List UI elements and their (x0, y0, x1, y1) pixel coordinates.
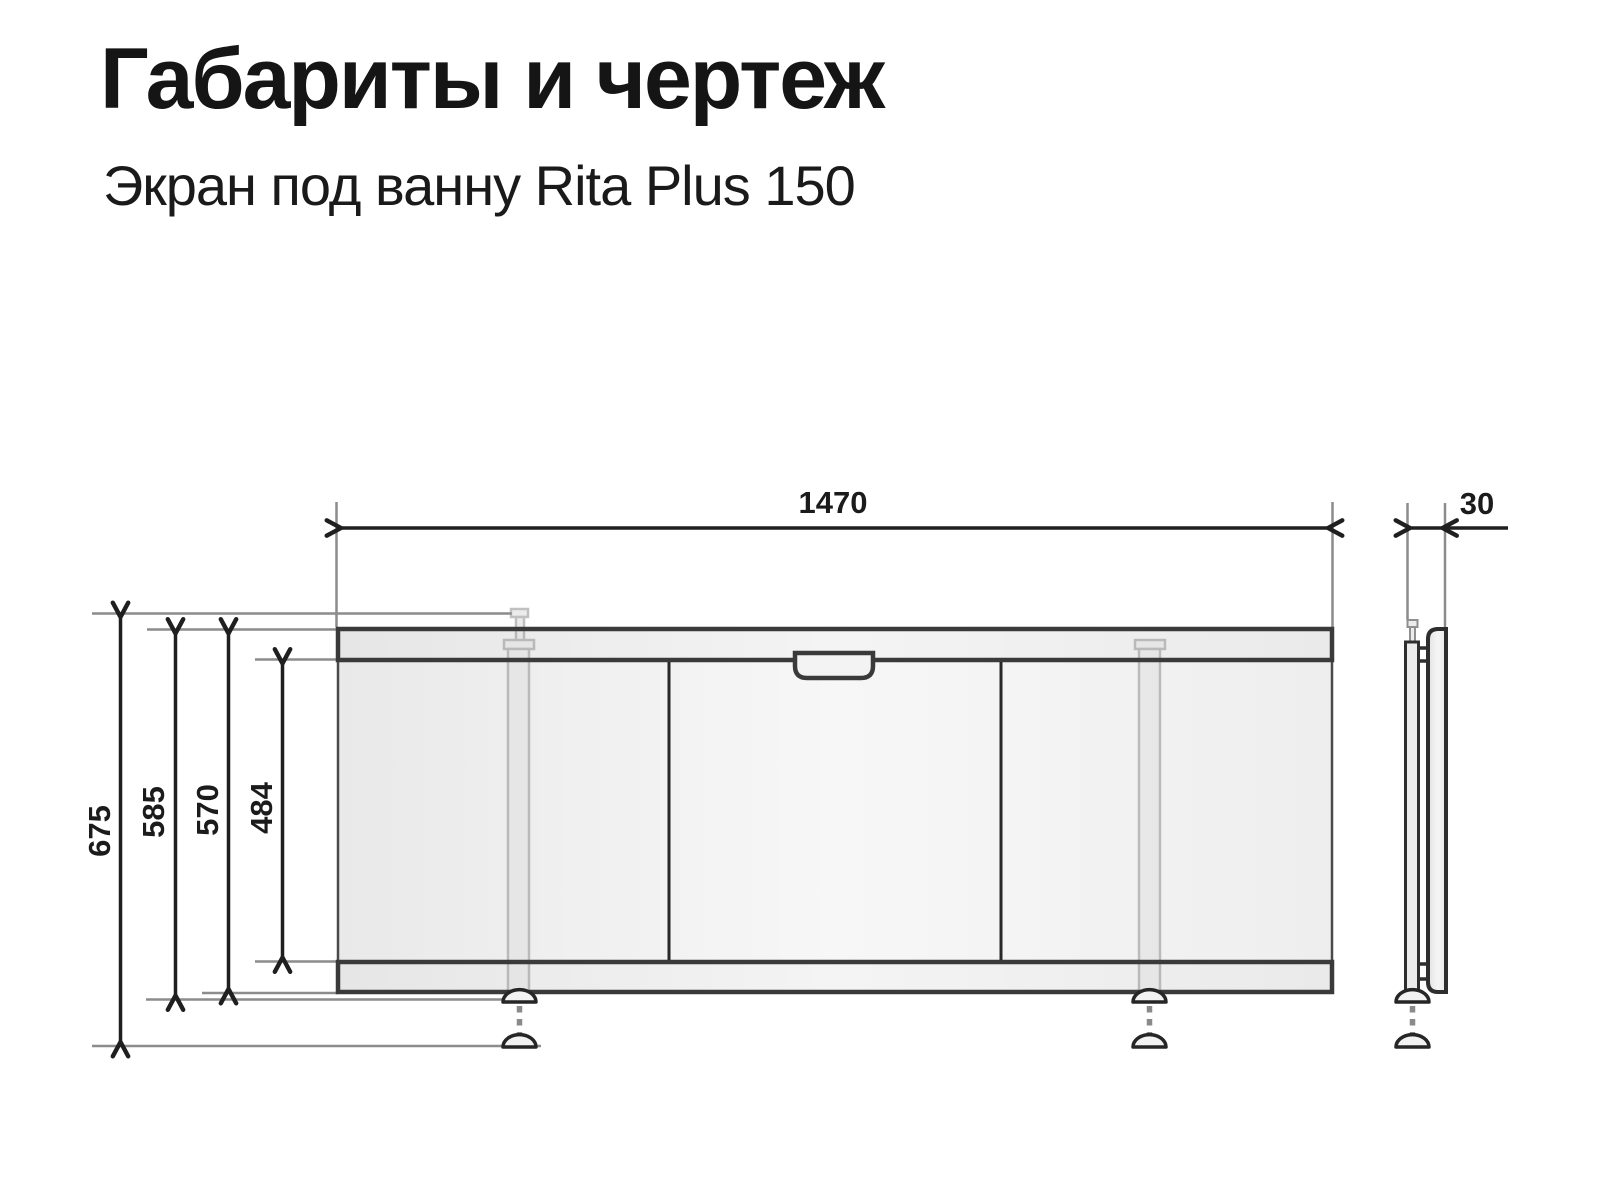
foot-right-upper-dome (1133, 990, 1166, 1002)
leg-right-stem (1139, 649, 1160, 991)
side-screw (1408, 620, 1418, 643)
leg-left-cap (504, 640, 534, 649)
door-handle (795, 653, 873, 678)
panel-area (338, 660, 1332, 962)
leg-left-stem (508, 649, 529, 991)
foot-left-lower-dome (503, 1035, 536, 1047)
page: Габариты и чертеж Экран под ванну Rita P… (0, 0, 1600, 1200)
dimension-height-675: 675 (82, 617, 121, 1042)
dim-depth-label: 30 (1460, 486, 1494, 521)
dim-585-label: 585 (136, 786, 171, 838)
dimension-height-570: 570 (190, 634, 229, 990)
side-leg-bar (1406, 642, 1419, 990)
foot-right-lower-dome (1133, 1035, 1166, 1047)
dimension-depth: 30 (1410, 486, 1508, 528)
technical-drawing: 1470 30 675 585 570 484 (0, 0, 1600, 1200)
dimension-height-585: 585 (136, 634, 176, 996)
side-foot-upper-dome (1396, 990, 1429, 1002)
foot-right (1133, 990, 1166, 1047)
foot-left-upper-dome (503, 990, 536, 1002)
leg-right-cap (1135, 640, 1165, 649)
dimension-height-484: 484 (244, 664, 283, 958)
dim-675-label: 675 (82, 805, 117, 857)
dimension-width: 1470 (341, 485, 1328, 528)
leg-right (1135, 640, 1165, 991)
side-panel-profile (1428, 629, 1446, 992)
side-foot-lower-dome (1396, 1035, 1429, 1047)
side-foot (1396, 990, 1429, 1047)
foot-left (503, 990, 536, 1047)
dim-width-label: 1470 (799, 485, 868, 520)
dim-570-label: 570 (190, 784, 225, 836)
side-view (1396, 620, 1446, 1047)
bottom-rail (338, 962, 1332, 992)
dim-484-label: 484 (244, 781, 279, 833)
leg-left (504, 609, 534, 991)
front-view (338, 609, 1332, 1047)
